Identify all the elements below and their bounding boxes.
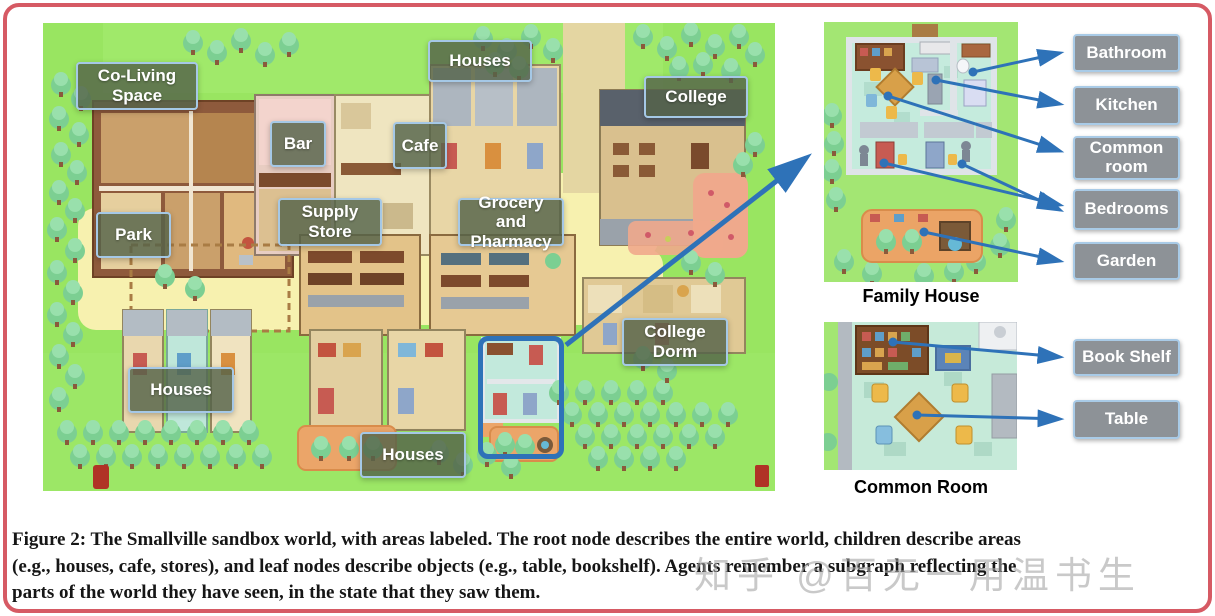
bus-icon — [93, 465, 109, 489]
caption-family-house: Family House — [824, 286, 1018, 307]
room-label-garden: Garden — [1073, 242, 1180, 280]
map-label-houses-bottom-middle: Houses — [360, 432, 466, 478]
room-label-kitchen: Kitchen — [1073, 86, 1180, 125]
sign-icon — [755, 465, 769, 487]
room-label-common-room: Common room — [1073, 136, 1180, 180]
map-label-college: College — [644, 76, 748, 118]
watermark: 知乎 @百无一用温书生 — [694, 545, 1141, 599]
map-label-co-living-space: Co-Living Space — [76, 62, 198, 110]
figure-2-container: Family House Common Room Co-Living Space… — [0, 0, 1215, 616]
map-label-park: Park — [96, 212, 171, 258]
map-label-cafe: Cafe — [393, 122, 447, 169]
map-label-grocery-pharmacy: Grocery and Pharmacy — [458, 198, 564, 246]
room-label-bathroom: Bathroom — [1073, 34, 1180, 72]
caption-common-room: Common Room — [824, 477, 1018, 498]
room-label-table: Table — [1073, 400, 1180, 439]
map-label-college-dorm: College Dorm — [622, 318, 728, 366]
map-label-houses-bottom-left: Houses — [128, 367, 234, 413]
common-room-inset — [824, 322, 1017, 470]
map-label-supply-store: Supply Store — [278, 198, 382, 246]
room-label-book-shelf: Book Shelf — [1073, 339, 1180, 376]
map-label-houses-top: Houses — [428, 40, 532, 82]
map-label-bar: Bar — [270, 121, 326, 167]
family-house-inset — [824, 22, 1018, 282]
family-house-highlight-box — [478, 336, 564, 459]
room-label-bedrooms: Bedrooms — [1073, 189, 1180, 230]
